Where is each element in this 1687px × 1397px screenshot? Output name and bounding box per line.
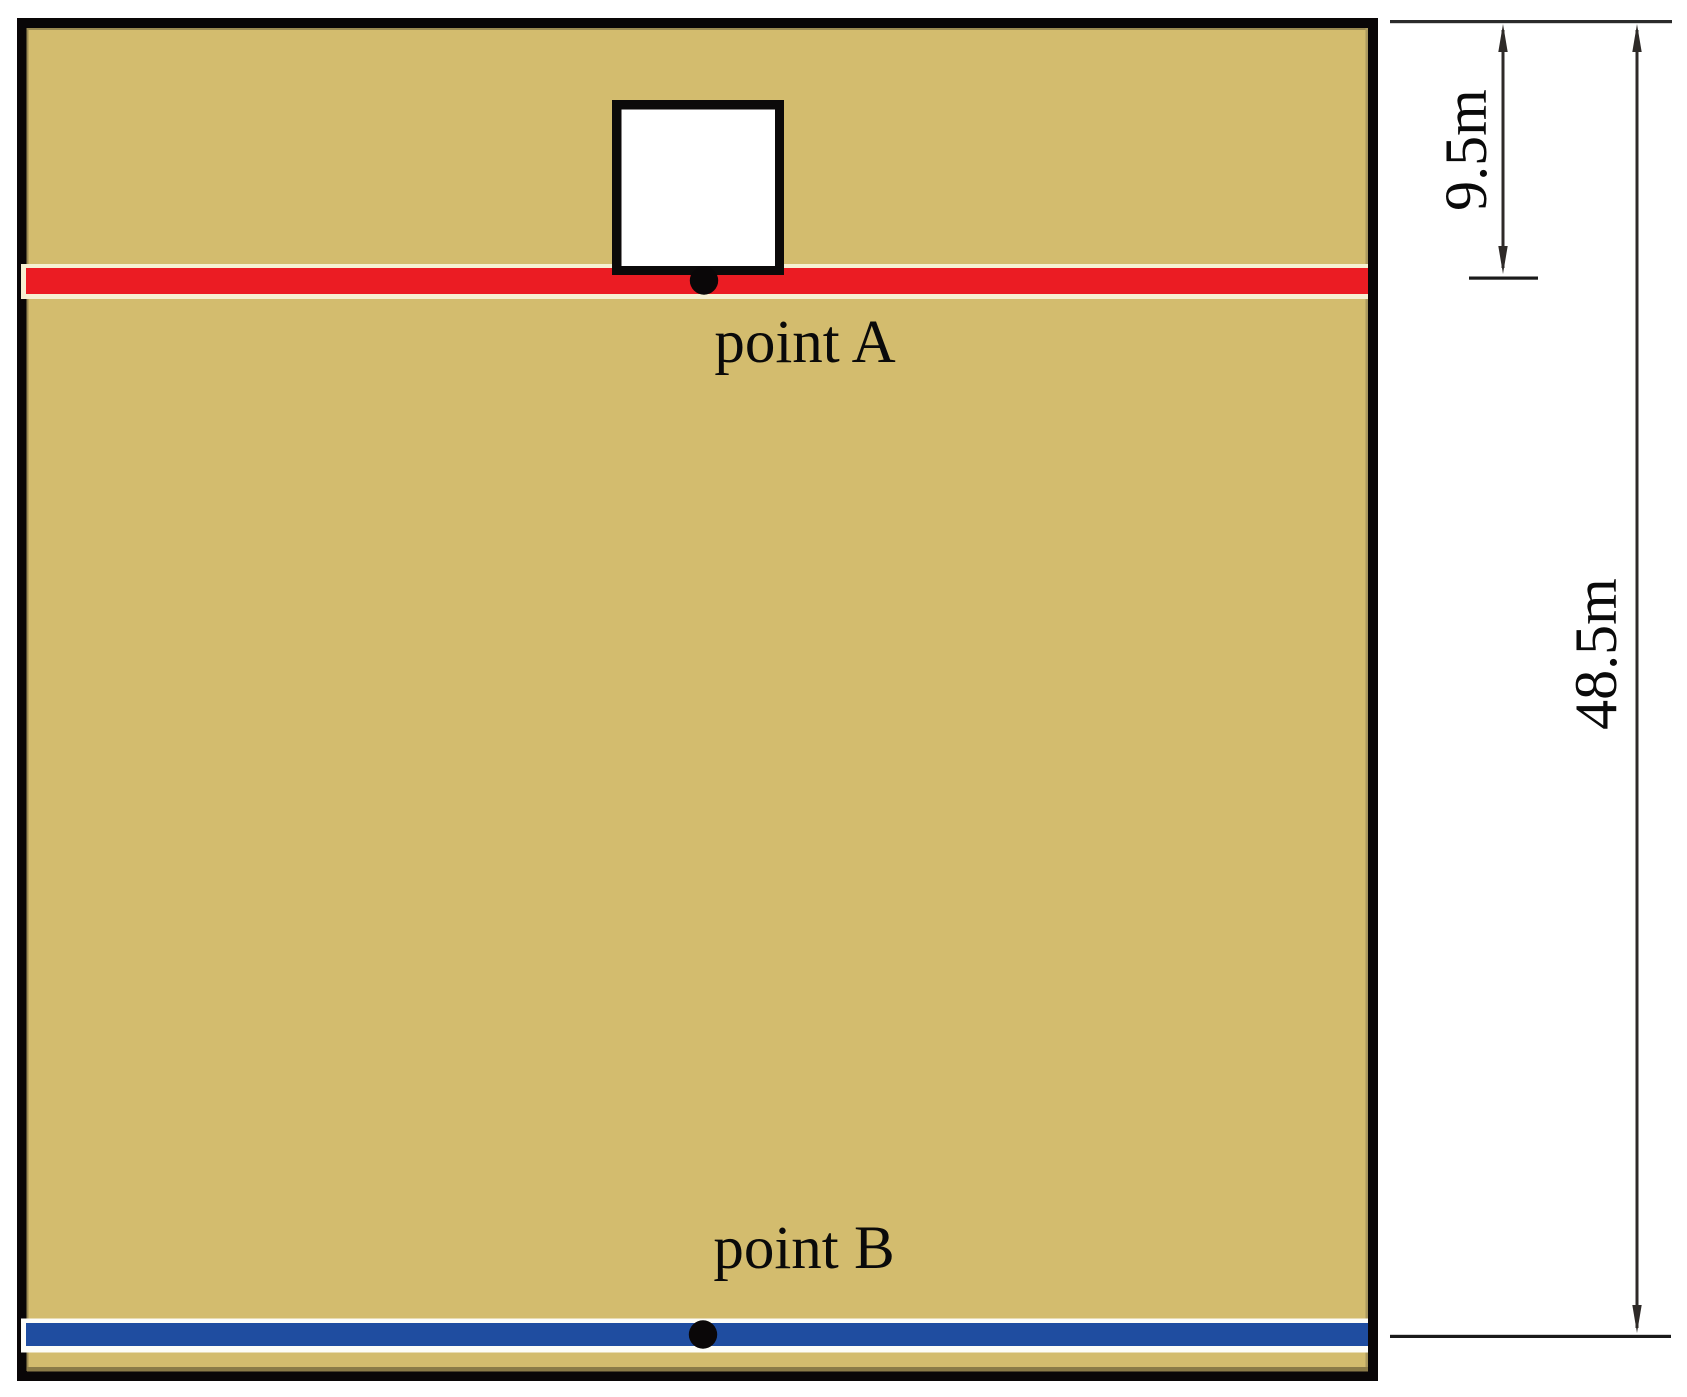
svg-text:point A: point A [714,309,895,376]
svg-text:48.5m: 48.5m [1563,578,1629,730]
svg-text:9.5m: 9.5m [1433,89,1499,211]
svg-text:point B: point B [713,1215,894,1282]
